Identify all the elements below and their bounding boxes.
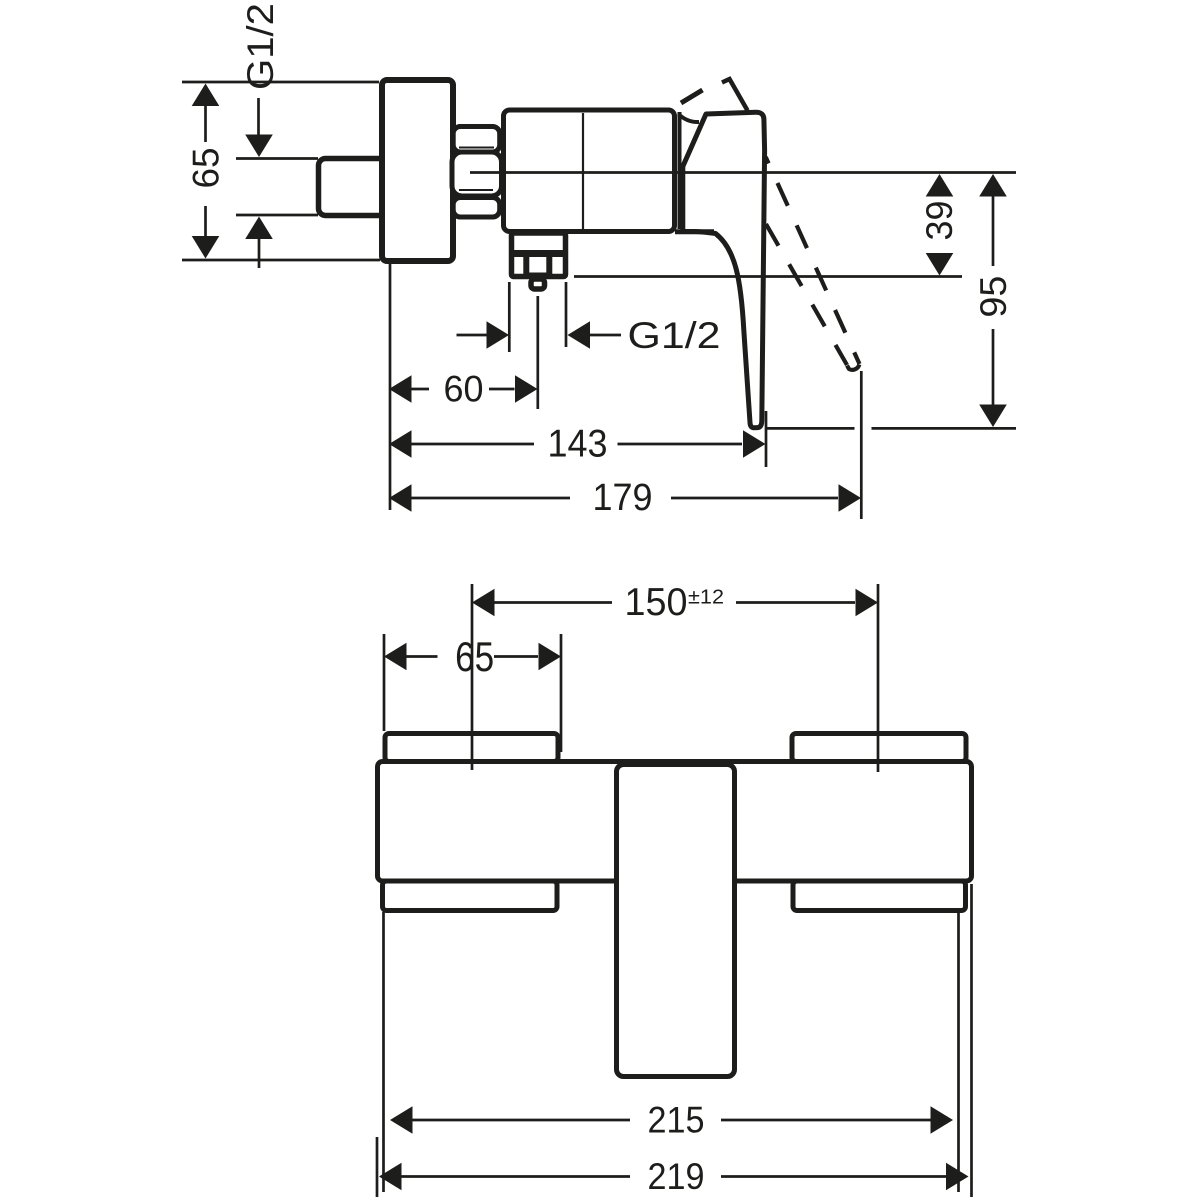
svg-text:±12: ±12	[688, 586, 724, 609]
svg-text:95: 95	[973, 276, 1014, 318]
svg-text:60: 60	[444, 369, 484, 410]
svg-text:39: 39	[919, 201, 960, 241]
svg-text:150: 150	[625, 581, 688, 624]
svg-text:215: 215	[648, 1100, 705, 1141]
svg-text:65: 65	[184, 148, 226, 189]
svg-text:219: 219	[648, 1156, 705, 1197]
svg-text:G1/2: G1/2	[628, 314, 721, 356]
svg-text:143: 143	[548, 423, 608, 466]
svg-text:G1/2: G1/2	[239, 3, 281, 90]
svg-text:65: 65	[455, 633, 494, 680]
svg-text:179: 179	[593, 477, 653, 519]
